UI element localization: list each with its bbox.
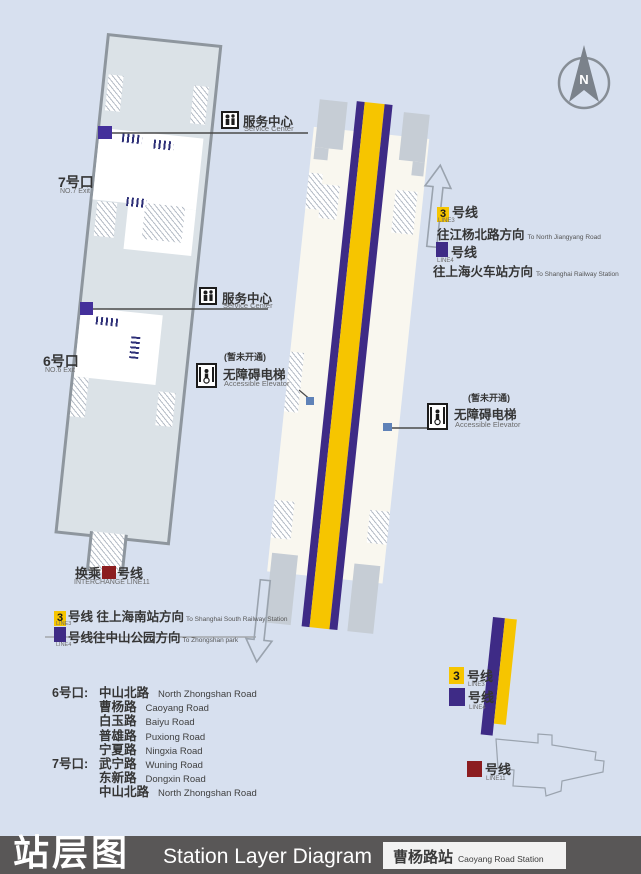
road-en: Dongxin Road bbox=[146, 774, 206, 785]
platform-structure-block bbox=[399, 112, 430, 162]
dest-en: To North Jiangyang Road bbox=[528, 234, 601, 241]
line11-hall bbox=[54, 33, 222, 545]
stair-hatch bbox=[142, 203, 186, 243]
platform-structure-block bbox=[315, 99, 348, 150]
accessible-elevator-icon bbox=[427, 403, 448, 430]
interchange-sublabel: INTERCHANGE LINE11 bbox=[74, 579, 150, 586]
service-center-icon bbox=[221, 111, 239, 129]
escalator-icon bbox=[122, 133, 143, 144]
dest-cn: 往上海火车站方向 bbox=[433, 261, 533, 280]
service-center-sublabel-2: Service Center bbox=[223, 301, 273, 310]
road-en: Puxiong Road bbox=[146, 732, 206, 743]
accessible-elevator-icon bbox=[196, 363, 217, 388]
dest-en: To Zhongshan park bbox=[183, 637, 239, 644]
direction-north-line4-dest: 往上海火车站方向 To Shanghai Railway Station bbox=[433, 261, 619, 280]
road-en: North Zhongshan Road bbox=[158, 689, 257, 700]
service-center-marker-1 bbox=[98, 126, 112, 139]
stair-hatch bbox=[318, 184, 339, 220]
hall-concourse-7 bbox=[93, 128, 204, 210]
station-name-en: Caoyang Road Station bbox=[458, 854, 544, 864]
line3-suffix: 号线 bbox=[452, 202, 478, 221]
hall-concourse-6 bbox=[74, 307, 163, 385]
compass-label: N bbox=[579, 72, 588, 87]
line4-badge bbox=[436, 242, 448, 257]
stair-hatch bbox=[70, 376, 89, 417]
line4-en: LINE4 bbox=[56, 642, 71, 648]
page-title-cn: 站层图 bbox=[13, 824, 130, 874]
line11-hall-outline bbox=[496, 734, 604, 796]
elevator-marker-right bbox=[383, 423, 392, 431]
platform-structure-block bbox=[314, 147, 329, 160]
road-en: Caoyang Road bbox=[146, 703, 209, 714]
road-en: Ningxia Road bbox=[146, 746, 203, 757]
line4-suffix: 号线 bbox=[451, 242, 477, 261]
station-layer-diagram: N 7号口 NO.7 Exit 6号口 NO.6 Exit 服务中心 Servi… bbox=[0, 0, 641, 874]
exit7-sublabel: NO.7 Exit bbox=[60, 188, 90, 195]
service-center-icon bbox=[199, 287, 217, 305]
stair-hatch bbox=[271, 500, 295, 540]
legend-line11-en: LINE11 bbox=[486, 776, 506, 782]
escalator-icon bbox=[126, 197, 147, 208]
road-cn: 中山北路 bbox=[99, 781, 149, 800]
exit-roads-list: 6号口: 中山北路 North Zhongshan Road 曹杨路 Caoya… bbox=[52, 682, 257, 796]
exit-prefix: 7号口: bbox=[52, 753, 96, 772]
stair-hatch bbox=[94, 201, 118, 238]
line11-badge bbox=[467, 761, 482, 777]
direction-south-line3: 3 号线 往上海南站方向 To Shanghai South Railway S… bbox=[54, 606, 288, 626]
road-en: Baiyu Road bbox=[146, 717, 195, 728]
platform-structure-block bbox=[347, 563, 380, 633]
elevator-right-note: (暂未开通) bbox=[468, 391, 510, 404]
service-center-marker-2 bbox=[80, 302, 93, 315]
exit-road-row: 6号口: 中山北路 North Zhongshan Road bbox=[52, 682, 257, 696]
compass-north: N bbox=[559, 45, 609, 108]
dest-en: To Shanghai South Railway Station bbox=[186, 616, 288, 623]
road-en: Wuning Road bbox=[146, 760, 203, 771]
line3-badge: 3 bbox=[449, 667, 464, 684]
elevator-left-note: (暂未开通) bbox=[224, 350, 266, 363]
road-en: North Zhongshan Road bbox=[158, 788, 257, 799]
stair-hatch bbox=[367, 510, 390, 545]
legend-line4-en: LINE4 bbox=[469, 705, 486, 711]
dest-cn: 往江杨北路方向 bbox=[437, 224, 525, 243]
exit6-sublabel: NO.6 Exit bbox=[45, 367, 75, 374]
dest-cn: 号线 往上海南站方向 bbox=[68, 606, 184, 625]
platform-structure-block bbox=[411, 161, 424, 176]
stair-hatch bbox=[190, 85, 209, 124]
dest-cn: 号线往中山公园方向 bbox=[68, 627, 181, 646]
elevator-left-sublabel: Accessible Elevator bbox=[224, 379, 289, 388]
exit-prefix: 6号口: bbox=[52, 682, 96, 701]
direction-south-line4: 号线往中山公园方向 To Zhongshan park bbox=[54, 627, 238, 646]
line11-badge bbox=[102, 566, 116, 579]
elevator-right-sublabel: Accessible Elevator bbox=[455, 420, 520, 429]
line3-4-platform bbox=[262, 97, 433, 634]
direction-north-line3-dest: 往江杨北路方向 To North Jiangyang Road bbox=[437, 224, 601, 243]
compass-needle-icon bbox=[569, 45, 599, 102]
legend-line4: 号线 bbox=[449, 687, 494, 706]
elevator-marker-left bbox=[306, 397, 314, 405]
stair-hatch bbox=[105, 74, 124, 111]
legend-cn: 号线 bbox=[468, 687, 494, 706]
stair-hatch bbox=[155, 391, 175, 427]
compass-circle bbox=[559, 58, 609, 108]
page-title-en: Station Layer Diagram bbox=[163, 845, 372, 869]
dest-en: To Shanghai Railway Station bbox=[536, 271, 619, 278]
escalator-icon bbox=[153, 140, 174, 151]
service-center-sublabel-1: Service Center bbox=[244, 124, 294, 133]
stair-hatch bbox=[391, 190, 417, 235]
station-name-cn: 曹杨路站 bbox=[393, 846, 453, 867]
line4-badge bbox=[54, 627, 66, 642]
station-name-box: 曹杨路站 Caoyang Road Station bbox=[383, 842, 566, 869]
line4-badge bbox=[449, 688, 465, 706]
